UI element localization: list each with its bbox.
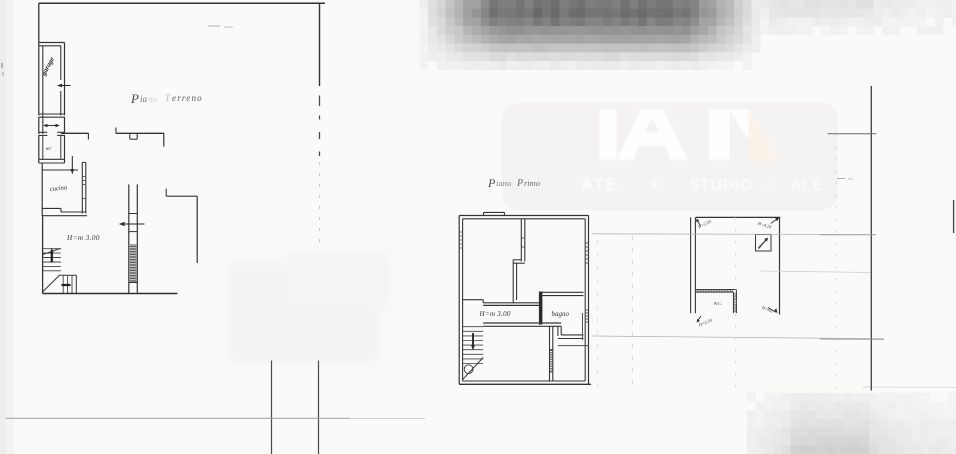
- svg-text:ia: ia: [140, 94, 148, 104]
- svg-text:rimo: rimo: [524, 178, 540, 188]
- svg-text:H=m 3.00: H=m 3.00: [66, 234, 100, 242]
- svg-text:P: P: [130, 91, 140, 106]
- svg-text:LE: LE: [758, 177, 779, 194]
- svg-text:P: P: [487, 176, 496, 190]
- svg-text:STUDIO: STUDIO: [689, 177, 752, 194]
- svg-text:bagno: bagno: [552, 310, 570, 318]
- svg-text:wc: wc: [46, 146, 53, 152]
- svg-text:ALE: ALE: [790, 177, 824, 194]
- svg-text:iano: iano: [496, 178, 511, 188]
- svg-text:W.C.: W.C.: [714, 301, 723, 306]
- svg-text:ATE: ATE: [581, 175, 618, 194]
- svg-text:P: P: [516, 178, 523, 189]
- svg-text:no: no: [148, 94, 158, 104]
- svg-text:H=m 3.00: H=m 3.00: [479, 310, 511, 318]
- svg-text:erreno: erreno: [172, 93, 203, 103]
